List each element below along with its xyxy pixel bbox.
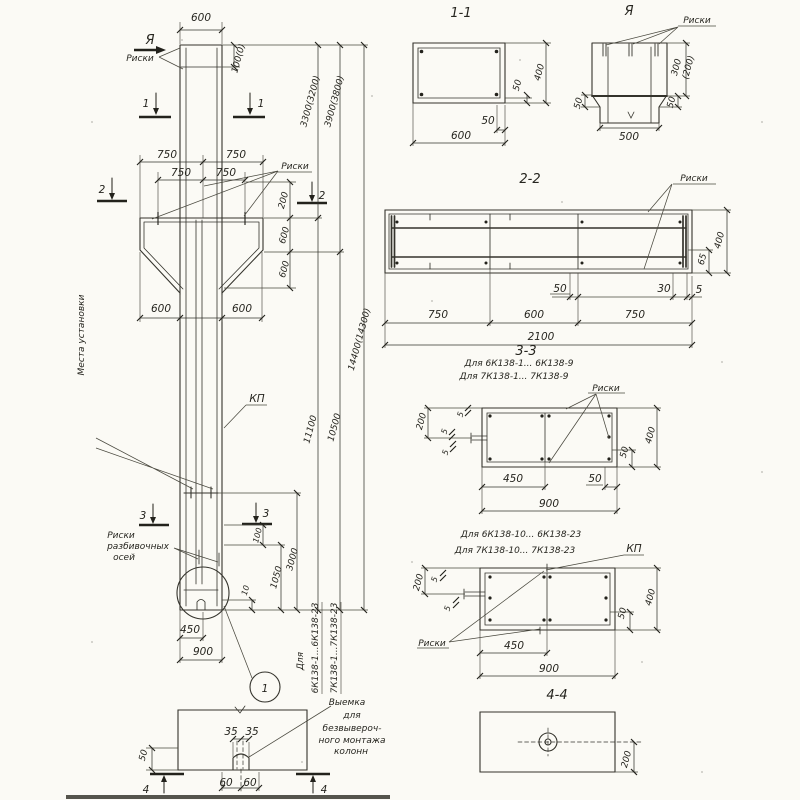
riski-leaders — [550, 184, 716, 294]
extension-lines — [581, 43, 690, 131]
plan-recess — [233, 754, 249, 770]
bottom-plan-view: 35 35 50 60 60 4 4 Выемка для безвывероч… — [138, 698, 386, 796]
stirrup — [389, 214, 688, 269]
view-marker-label: Я — [144, 33, 154, 48]
dim-label: 450 — [503, 473, 523, 485]
console-inner — [144, 222, 259, 289]
dim-label: 50 — [619, 445, 632, 459]
riski-leaders — [549, 393, 625, 485]
detail-leader — [224, 606, 252, 678]
recess-note: ного монтажа — [318, 736, 385, 746]
dim-label: 60 — [243, 777, 257, 789]
stirrup — [418, 48, 500, 98]
dim-label: 5 — [440, 428, 450, 435]
dim-label: 5 — [456, 411, 466, 418]
outline — [480, 568, 615, 630]
series-note: Для — [296, 651, 306, 671]
applicability-note: Для 7К138-1... 7К138-9 — [458, 372, 568, 382]
plan-note-leader — [249, 706, 331, 757]
view-title: Я — [623, 4, 633, 19]
kp-label: КП — [626, 543, 641, 555]
section-mark-label: 4 — [143, 784, 150, 796]
dim-label: 35 — [245, 726, 259, 738]
embedded-plate — [464, 589, 485, 599]
recess-note: безвывероч- — [323, 724, 382, 734]
plan-extension-lines — [146, 742, 259, 791]
dim-label: 5 — [443, 605, 453, 612]
dim-label: 50 — [573, 96, 586, 110]
dim-label: 100 — [251, 527, 264, 544]
anchor-stubs — [603, 44, 658, 56]
dim-label: 750 — [226, 149, 246, 161]
dim-label: 750 — [216, 167, 236, 179]
series-note: 6К138-1...6К138-23 — [311, 602, 321, 693]
dim-label: 600 — [524, 309, 544, 321]
dim-label: 65 — [697, 252, 710, 266]
dim-label: 1050 — [269, 565, 285, 590]
dim-label: 400 — [644, 426, 658, 445]
riski-axes-note: осей — [113, 553, 135, 563]
section-3-3-bottom: Для 6К138-10... 6К138-23 Для 7К138-10...… — [412, 530, 661, 679]
applicability-note: Для 7К138-10... 7К138-23 — [454, 546, 576, 556]
recess-note: Выемка — [329, 698, 366, 708]
dim-label: 3000 — [285, 547, 301, 572]
dim-label: 400 — [533, 63, 547, 82]
section-mark-label: 2 — [99, 184, 106, 196]
dim-label: 400 — [713, 231, 727, 250]
longitudinal-bars — [392, 228, 686, 257]
view-a: Я Риски 300 (200) 50 50 500 — [573, 4, 716, 143]
dim-label: 200 — [277, 191, 291, 210]
dim-label: 50 — [617, 606, 630, 620]
dim-label: 5 — [696, 284, 703, 296]
riski-label: Риски — [592, 384, 620, 394]
section-mark-label: 4 — [321, 784, 328, 796]
riski-label: Риски — [683, 16, 711, 26]
dim-label: 500 — [619, 131, 639, 143]
dim-label: 400 — [644, 588, 658, 607]
drawing-sheet: 600 Я Риски 100(0) 1 1 750 750 750 750 Р… — [0, 0, 800, 800]
stirrup — [485, 573, 610, 625]
dim-label: 200 — [415, 412, 429, 431]
section-4-4: 4-4 200 — [480, 688, 642, 772]
dividers — [430, 214, 578, 269]
dim-label: 14400(14300) — [347, 307, 373, 372]
leader-lines — [96, 48, 312, 562]
dim-label: 35 — [224, 726, 238, 738]
section-2-2: 2-2 Риски 50 30 5 750 600 750 2100 400 6… — [385, 172, 731, 348]
stirrup — [487, 413, 612, 462]
dim-label: 450 — [180, 624, 200, 636]
dim-label: 900 — [539, 498, 559, 510]
section-mark-label: 1 — [143, 98, 150, 110]
dim-label: 30 — [657, 283, 671, 295]
inner-lines — [608, 47, 651, 123]
console-outline — [140, 218, 263, 293]
applicability-note: Для 6К138-1... 6К138-9 — [463, 359, 573, 369]
rebar-dots — [396, 221, 682, 265]
elevation-view: 600 Я Риски 100(0) 1 1 750 750 750 750 Р… — [77, 12, 373, 702]
technical-drawing: 600 Я Риски 100(0) 1 1 750 750 750 750 Р… — [0, 0, 800, 800]
recess-note: для — [342, 711, 361, 721]
dim-label: 750 — [428, 309, 448, 321]
dim-label: 10500 — [327, 412, 344, 443]
riski-leaders — [606, 26, 716, 45]
kp-label: КП — [249, 393, 264, 405]
riski-label: Риски — [281, 162, 309, 172]
dim-label: 5 — [430, 576, 440, 583]
riski-label: Риски — [680, 174, 708, 184]
dim-label: 2100 — [528, 331, 555, 343]
detail-ref-label: 1 — [262, 683, 269, 695]
rebar-dots — [420, 50, 499, 97]
end-plates — [392, 216, 687, 267]
dim-label: 600 — [232, 303, 252, 315]
section-3-3-top: 3-3 Для 6К138-1... 6К138-9 Для 7К138-1..… — [415, 344, 661, 514]
dim-label: 50 — [481, 115, 495, 127]
recess-note: колонн — [334, 747, 368, 757]
section-mark-label: 3 — [140, 510, 147, 522]
dim-label: 750 — [625, 309, 645, 321]
section-title: 3-3 — [515, 344, 536, 359]
section-title: 2-2 — [519, 172, 540, 187]
column-foot-details — [184, 550, 219, 610]
section-title: 1-1 — [450, 6, 471, 21]
dim-label: 11100 — [303, 414, 320, 445]
mini-ticks — [440, 570, 459, 608]
dim-label: 50 — [138, 748, 151, 762]
extension-lines — [385, 210, 731, 348]
dim-label: 750 — [157, 149, 177, 161]
section-mark-label: 1 — [258, 98, 265, 110]
dim-label: 50 — [553, 283, 567, 295]
dim-label: 450 — [504, 640, 524, 652]
rebar-dots — [488, 414, 610, 460]
section-4-markers — [150, 774, 330, 793]
section-title: 4-4 — [546, 688, 567, 703]
dim-label: 3900(3800) — [323, 75, 346, 129]
plan-center-dashes — [237, 741, 243, 791]
dim-label: 50 — [588, 473, 602, 485]
section-mark-label: 2 — [319, 190, 326, 202]
outline — [413, 43, 505, 103]
dim-label: 200 — [412, 573, 426, 592]
dim-label: (200) — [681, 54, 697, 80]
applicability-note: Для 6К138-10... 6К138-23 — [460, 530, 582, 540]
scan-edge — [66, 795, 390, 799]
column-inner-lines — [181, 48, 221, 606]
paper-noise — [91, 39, 763, 773]
rebar-dots — [488, 575, 607, 621]
riski-axes-note: разбивочных — [106, 542, 170, 552]
embedded-plate — [471, 433, 487, 443]
riska-marks — [540, 564, 547, 634]
dim-label: 10 — [240, 584, 251, 596]
strop-note: Места установки — [77, 294, 87, 375]
dim-label: 50 — [512, 78, 525, 92]
dim-label: 600 — [191, 12, 211, 24]
dim-label: 600 — [451, 130, 471, 142]
detail-region-circle — [177, 567, 229, 619]
dim-label: 900 — [193, 646, 213, 658]
dim-label: 600 — [151, 303, 171, 315]
dim-label: 900 — [539, 663, 559, 675]
section-1-1: 1-1 50 400 50 600 — [413, 6, 551, 146]
plan-outline — [178, 710, 307, 770]
dim-label: 60 — [219, 777, 233, 789]
riski-label: Риски — [418, 639, 446, 649]
riski-axes-note: Риски — [107, 531, 135, 541]
extension-lines — [413, 43, 551, 146]
section-mark-label: 3 — [263, 508, 270, 520]
dim-label: 3300(3200) — [299, 75, 322, 129]
weld-mark — [628, 112, 634, 118]
dim-label: 100(0) — [230, 43, 247, 75]
dim-label: 750 — [171, 167, 191, 179]
series-note: 7К138-1...7К138-23 — [330, 602, 340, 693]
dim-label: 200 — [620, 750, 634, 769]
riski-label: Риски — [126, 54, 154, 64]
dim-label: 5 — [441, 449, 451, 456]
